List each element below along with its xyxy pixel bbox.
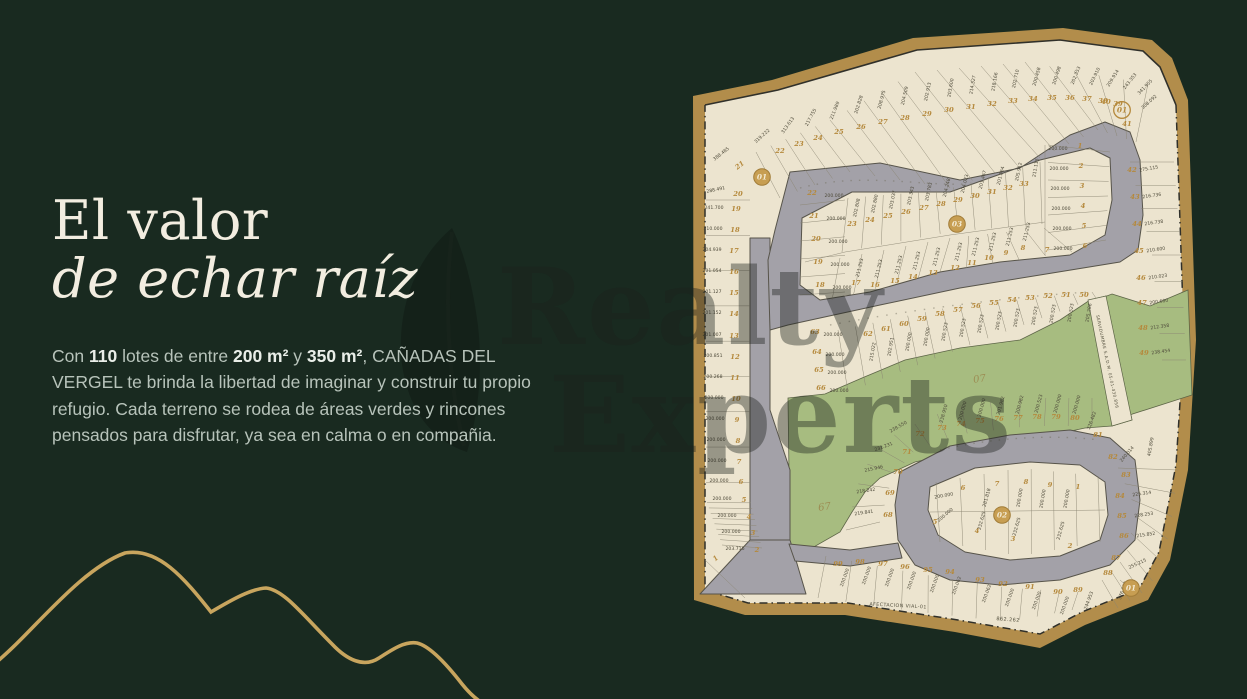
- lot-area-label: 200.000: [1052, 206, 1071, 212]
- lot-number-label: 57: [953, 306, 963, 314]
- lot-area-label: 200.000: [705, 395, 724, 401]
- lot-number-label: 68: [883, 511, 893, 519]
- lot-area-label: 203.716: [726, 546, 745, 552]
- block-marker-label: 01: [1117, 106, 1127, 115]
- paragraph-bold-run: 350 m²: [307, 346, 362, 366]
- lot-number-label: 85: [1117, 512, 1127, 520]
- lot-number-label: 48: [1138, 324, 1148, 332]
- lot-number-label: 82: [1108, 453, 1118, 461]
- lot-number-label: 13: [928, 269, 938, 277]
- lot-number-label: 74: [956, 420, 966, 428]
- lot-number-label: 50: [1079, 291, 1089, 299]
- lot-number-label: 7: [995, 480, 1000, 488]
- lot-number-label: 78: [1032, 413, 1042, 421]
- slide: 388.48521288.49120241.70019210.00018204.…: [0, 0, 1247, 699]
- lot-area-label: 200.000: [1053, 226, 1072, 232]
- lot-number-label: 33: [1019, 180, 1029, 188]
- lot-number-label: 5: [1082, 222, 1087, 230]
- lot-number-label: 7: [1045, 246, 1050, 254]
- lot-area-label: 200.000: [830, 388, 849, 394]
- lot-number-label: 53: [1025, 294, 1035, 302]
- lot-number-label: 25: [882, 212, 893, 220]
- page-title: El valor de echar raíz: [52, 192, 592, 309]
- lot-area-label: 200.000: [827, 216, 846, 222]
- lot-number-label: 9: [735, 416, 740, 424]
- lot-area-label: 200.268: [704, 374, 723, 380]
- lot-area-label: 200.000: [829, 239, 848, 245]
- block-marker-03: 03: [949, 216, 966, 233]
- lot-area-label: 200.000: [1054, 246, 1073, 252]
- lot-number-label: 66: [816, 384, 826, 392]
- lot-number-label: 1: [1076, 483, 1081, 491]
- lot-number-label: 64: [812, 348, 822, 356]
- lot-number-label: 91: [1025, 583, 1034, 591]
- lot-number-label: 8: [1024, 478, 1029, 486]
- lot-number-label: 6: [961, 484, 966, 492]
- lot-number-label: 98: [855, 558, 865, 566]
- lot-area-label: 200.000: [824, 332, 843, 338]
- lot-number-label: 2: [1067, 542, 1073, 550]
- lot-number-label: 29: [952, 196, 963, 204]
- lot-number-label: 3: [1080, 182, 1085, 190]
- lot-area-label: 200.000: [1050, 166, 1069, 172]
- lot-number-label: 90: [1053, 588, 1063, 596]
- lot-number-label: 40: [1101, 98, 1111, 106]
- lot-number-label: 59: [917, 315, 927, 323]
- lot-area-label: 200.000: [710, 478, 729, 484]
- lot-number-label: 79: [1051, 413, 1061, 421]
- lot-number-label: 20: [732, 190, 743, 198]
- lot-number-label: 93: [975, 576, 985, 584]
- lot-area-label: 200.000: [1049, 146, 1068, 152]
- lot-number-label: 75: [975, 417, 985, 425]
- lot-number-label: 8: [736, 437, 741, 445]
- lot-area-label: 201.127: [703, 289, 722, 295]
- lot-number-label: 9: [1004, 249, 1009, 257]
- lot-number-label: 28: [899, 114, 910, 122]
- lot-number-label: 22: [774, 147, 785, 155]
- block-marker-label: 02: [997, 511, 1007, 520]
- lot-area-label: 200.000: [708, 458, 727, 464]
- lot-number-label: 7: [737, 458, 742, 466]
- block-marker-label: 01: [1126, 584, 1136, 593]
- lot-area-label: 200.000: [828, 370, 847, 376]
- lot-number-label: 12: [730, 353, 740, 361]
- block-marker-01: 01: [1123, 580, 1140, 597]
- lot-number-label: 24: [812, 134, 823, 142]
- lot-number-label: 18: [815, 281, 825, 289]
- lot-number-label: 22: [806, 189, 817, 197]
- paragraph-run: lotes de entre: [117, 346, 233, 366]
- lot-area-label: 200.851: [704, 353, 723, 359]
- lot-number-label: 30: [944, 106, 954, 114]
- lot-number-label: 94: [945, 568, 955, 576]
- lot-number-label: 76: [994, 415, 1004, 423]
- lot-area-label: 204.939: [703, 247, 722, 253]
- lot-number-label: 36: [1065, 94, 1075, 102]
- lot-number-label: 6: [739, 478, 744, 486]
- lot-number-label: 11: [730, 374, 739, 382]
- lot-number-label: 49: [1139, 349, 1149, 357]
- lot-number-label: 4: [1081, 202, 1086, 210]
- lot-number-label: 3: [751, 529, 756, 537]
- lot-number-label: 1: [1078, 142, 1083, 150]
- lot-number-label: 15: [890, 277, 900, 285]
- lot-number-label: 12: [950, 264, 960, 272]
- lot-number-label: 24: [864, 216, 875, 224]
- lot-number-label: 6: [1083, 242, 1088, 250]
- lot-number-label: 9: [1048, 481, 1053, 489]
- green-area-label: 67: [818, 501, 833, 514]
- lot-number-label: 4: [747, 513, 752, 521]
- lot-number-label: 15: [729, 289, 739, 297]
- paragraph-run: Con: [52, 346, 89, 366]
- lot-number-label: 42: [1127, 166, 1137, 174]
- lot-number-label: 61: [881, 325, 890, 333]
- lot-number-label: 96: [900, 563, 910, 571]
- lot-number-label: 52: [1043, 292, 1053, 300]
- lot-number-label: 45: [1134, 247, 1144, 255]
- lot-number-label: 31: [987, 188, 996, 196]
- lot-number-label: 70: [893, 468, 903, 476]
- lot-number-label: 32: [987, 100, 997, 108]
- lot-area-label: 200.000: [831, 262, 850, 268]
- lot-number-label: 92: [998, 580, 1008, 588]
- lot-number-label: 81: [1093, 431, 1102, 439]
- lot-number-label: 19: [813, 258, 823, 266]
- lot-number-label: 27: [918, 204, 929, 212]
- lot-number-label: 62: [863, 330, 873, 338]
- lot-number-label: 14: [908, 273, 918, 281]
- lot-number-label: 25: [833, 128, 844, 136]
- lot-number-label: 43: [1130, 193, 1140, 201]
- lot-number-label: 86: [1119, 532, 1129, 540]
- lot-area-label: 200.000: [707, 437, 726, 443]
- hero-paragraph: Con 110 lotes de entre 200 m² y 350 m², …: [52, 343, 568, 449]
- lot-number-label: 83: [1121, 471, 1131, 479]
- title-line-2: de echar raíz: [52, 247, 418, 310]
- lot-number-label: 31: [966, 103, 975, 111]
- lot-number-label: 32: [1003, 184, 1013, 192]
- lot-number-label: 44: [1132, 220, 1142, 228]
- lot-number-label: 88: [1103, 569, 1113, 577]
- lot-number-label: 2: [1078, 162, 1084, 170]
- paragraph-bold-run: 110: [89, 346, 117, 366]
- lot-number-label: 14: [729, 310, 739, 318]
- lot-number-label: 34: [1028, 95, 1038, 103]
- lot-number-label: 72: [915, 430, 925, 438]
- lot-number-label: 21: [808, 212, 818, 220]
- lot-area-label: 200.000: [833, 285, 852, 291]
- lot-number-label: 97: [878, 560, 888, 568]
- lot-number-label: 73: [937, 424, 947, 432]
- lot-number-label: 28: [935, 200, 946, 208]
- lot-number-label: 77: [1013, 414, 1023, 422]
- lot-area-label: 210.000: [704, 226, 723, 232]
- lot-number-label: 95: [923, 566, 933, 574]
- green-area-label: 07: [973, 373, 988, 386]
- lot-area-label: 241.700: [705, 205, 724, 211]
- title-line-1: El valor: [52, 189, 268, 252]
- block-marker-label: 01: [757, 173, 767, 182]
- lot-number-label: 30: [970, 192, 980, 200]
- lot-number-label: 35: [1047, 94, 1057, 102]
- lot-number-label: 33: [1008, 97, 1018, 105]
- lot-number-label: 46: [1136, 274, 1146, 282]
- block-marker-02: 02: [994, 507, 1011, 524]
- lot-area-label: 201.007: [703, 332, 722, 338]
- lot-number-label: 23: [793, 140, 804, 148]
- lot-number-label: 84: [1115, 492, 1125, 500]
- lot-number-label: 71: [902, 448, 911, 456]
- lot-number-label: 60: [899, 320, 909, 328]
- lot-number-label: 26: [855, 123, 866, 131]
- lot-area-label: 200.000: [718, 513, 737, 519]
- lot-number-label: 26: [900, 208, 911, 216]
- lot-area-label: 200.000: [1051, 186, 1070, 192]
- paragraph-bold-run: 200 m²: [233, 346, 288, 366]
- lot-number-label: 87: [1111, 554, 1121, 562]
- lot-number-label: 19: [731, 205, 741, 213]
- lot-number-label: 11: [967, 259, 976, 267]
- lot-number-label: 13: [729, 332, 739, 340]
- lot-number-label: 10: [984, 254, 994, 262]
- lot-number-label: 16: [729, 268, 739, 276]
- lot-area-label: 200.000: [826, 352, 845, 358]
- lot-number-label: 99: [833, 560, 843, 568]
- lot-number-label: 54: [1007, 296, 1017, 304]
- lot-number-label: 16: [870, 281, 880, 289]
- block-marker-label: 03: [952, 220, 962, 229]
- lot-number-label: 10: [731, 395, 741, 403]
- lot-number-label: 55: [989, 299, 999, 307]
- lot-number-label: 37: [1082, 95, 1092, 103]
- lot-number-label: 8: [1021, 244, 1026, 252]
- lot-number-label: 58: [935, 310, 945, 318]
- lot-number-label: 41: [1122, 120, 1131, 128]
- lot-number-label: 47: [1137, 299, 1147, 307]
- lot-area-label: 200.000: [722, 529, 741, 535]
- lot-number-label: 63: [810, 328, 820, 336]
- lot-number-label: 18: [730, 226, 740, 234]
- lot-area-label: 200.000: [713, 496, 732, 502]
- lot-number-label: 69: [885, 489, 895, 497]
- lot-number-label: 5: [742, 496, 747, 504]
- lot-area-label: 201.054: [703, 268, 722, 274]
- lot-area-label: 200.000: [825, 193, 844, 199]
- lot-number-label: 29: [921, 110, 932, 118]
- lot-number-label: 51: [1061, 291, 1070, 299]
- lot-number-label: 27: [877, 118, 888, 126]
- paragraph-run: y: [288, 346, 306, 366]
- hero-copy: El valor de echar raíz Con 110 lotes de …: [52, 192, 592, 449]
- lot-number-label: 56: [971, 302, 981, 310]
- lot-number-label: 23: [846, 220, 857, 228]
- lot-number-label: 65: [814, 366, 824, 374]
- lot-number-label: 17: [851, 279, 861, 287]
- lot-number-label: 80: [1070, 414, 1080, 422]
- lot-number-label: 20: [810, 235, 821, 243]
- lot-area-label: 201.152: [703, 310, 722, 316]
- block-marker-01: 01: [754, 169, 771, 186]
- lot-number-label: 89: [1073, 586, 1083, 594]
- lot-number-label: 2: [754, 546, 760, 554]
- lot-number-label: 17: [729, 247, 739, 255]
- lot-area-label: 200.000: [706, 416, 725, 422]
